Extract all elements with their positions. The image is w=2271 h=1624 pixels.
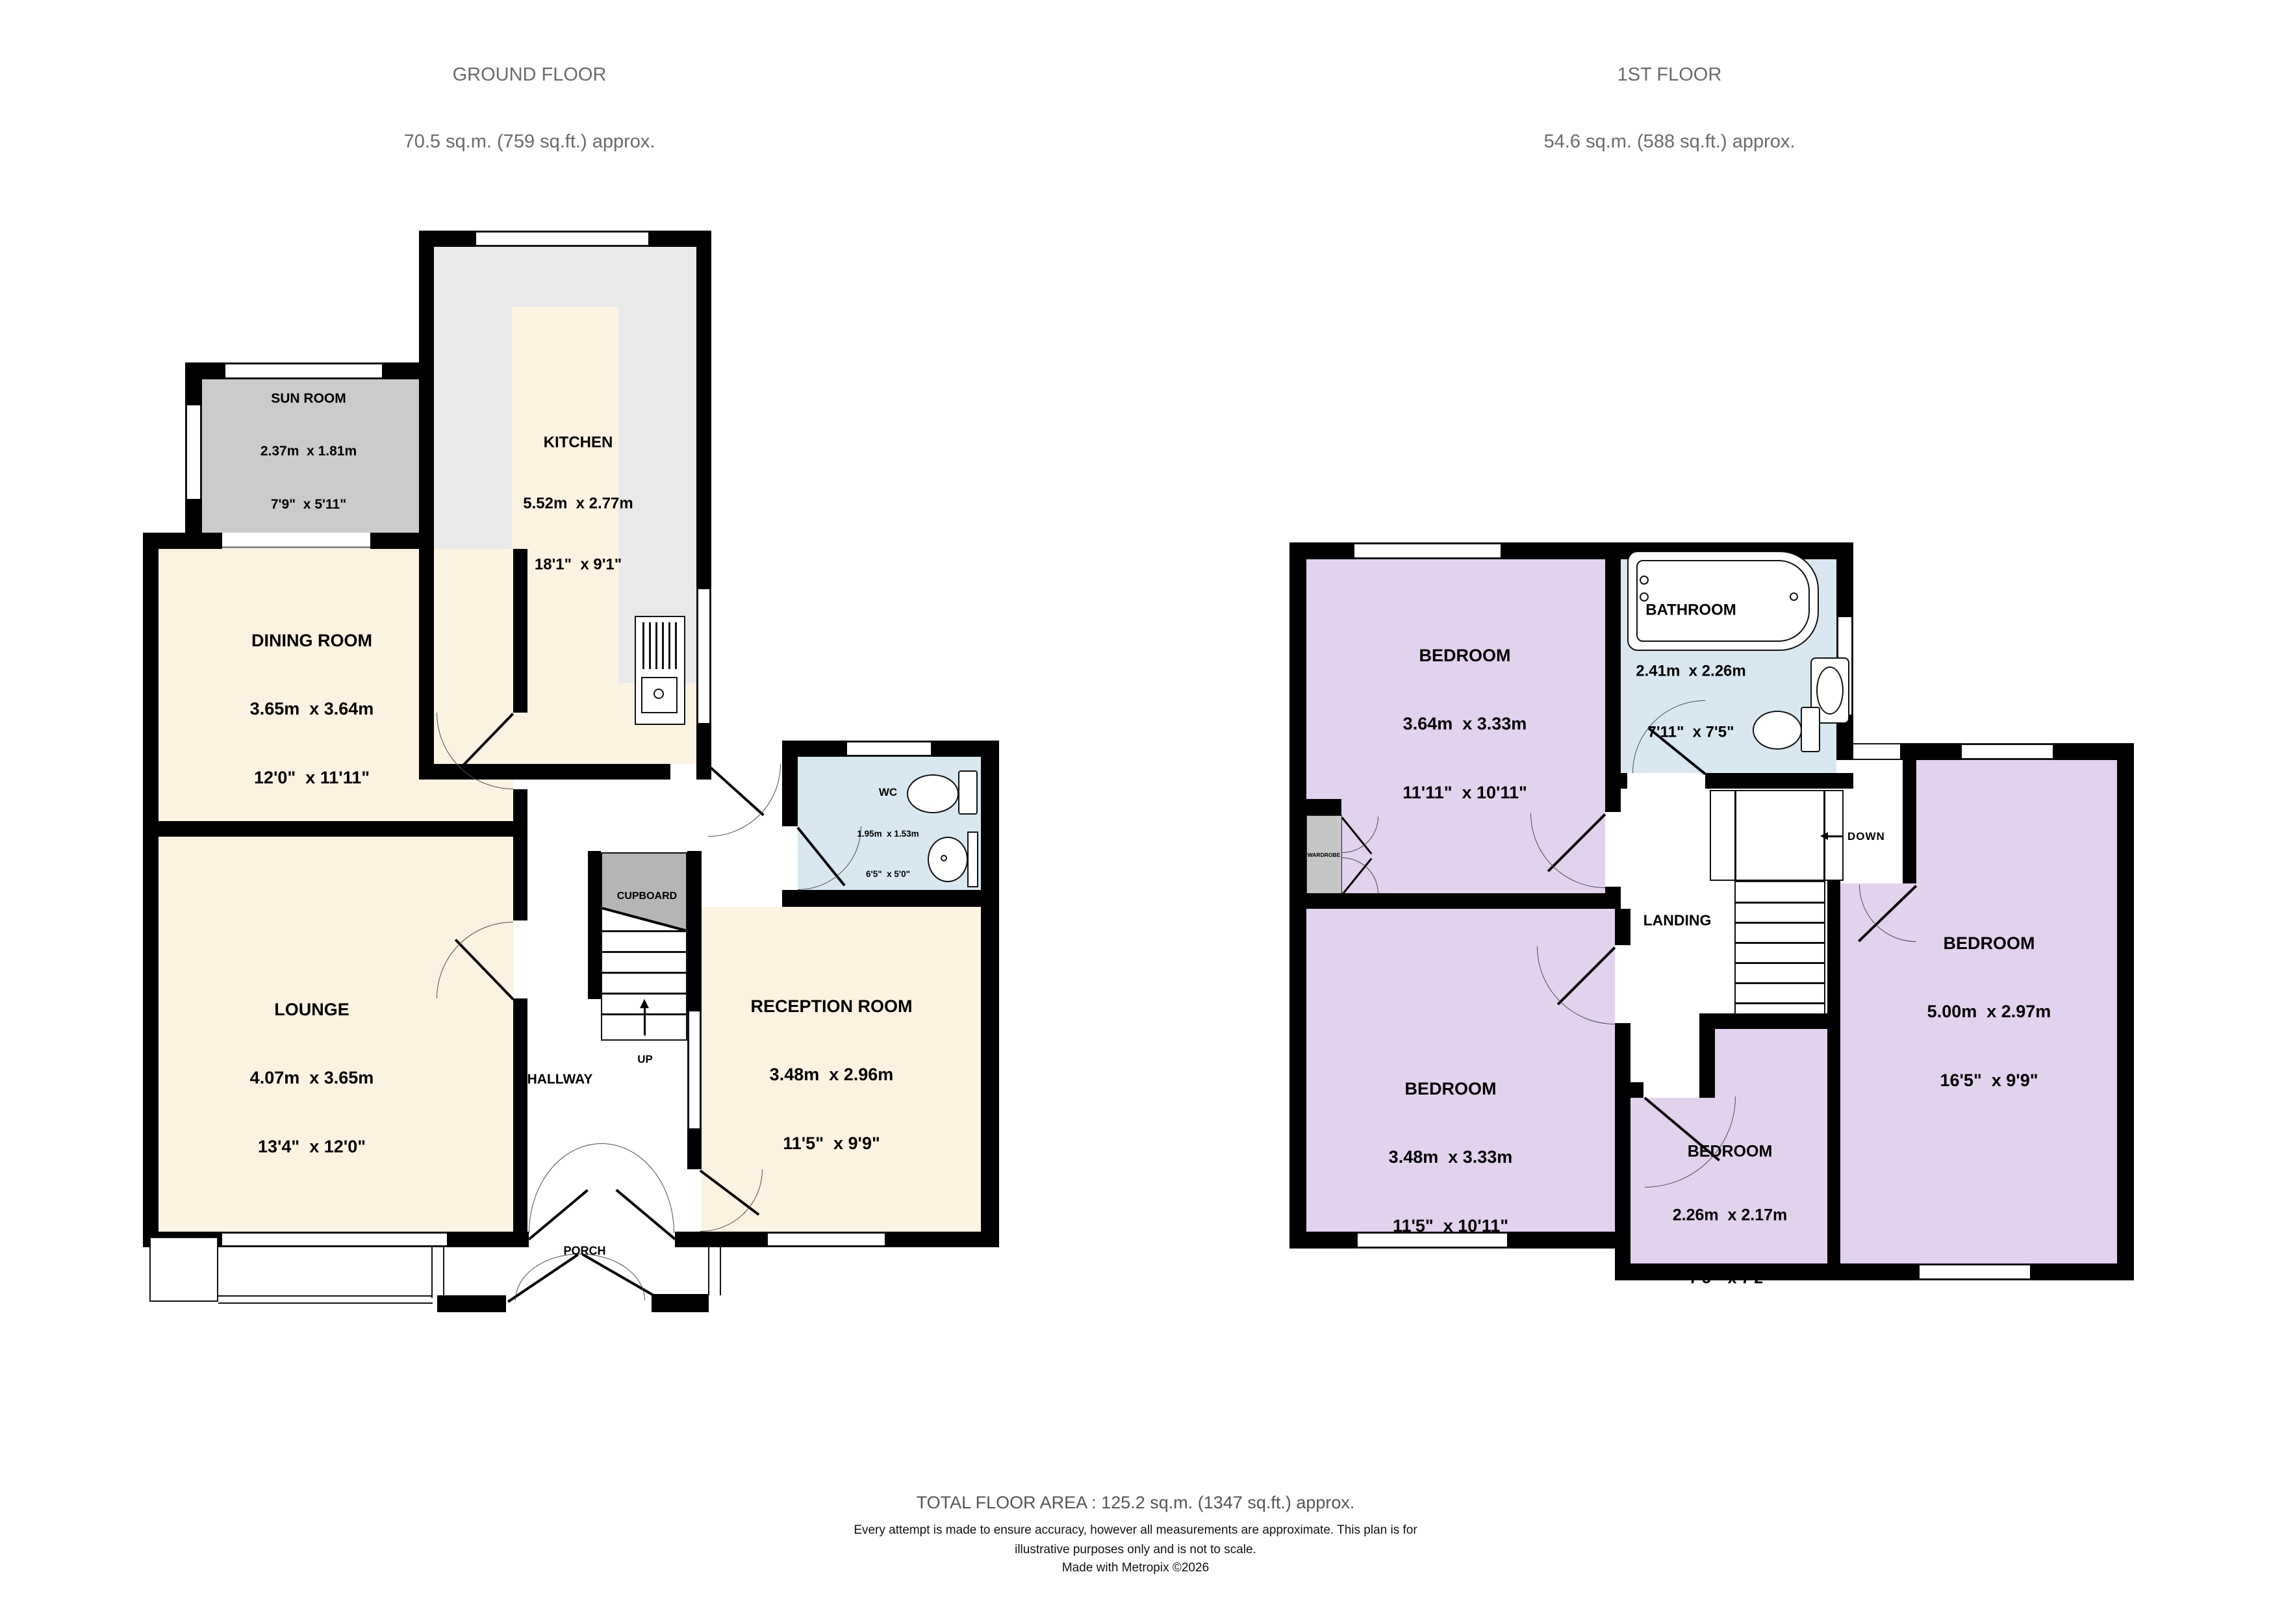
first-floor-title-line: 1ST FLOOR xyxy=(1544,64,1795,86)
wall xyxy=(185,362,225,379)
wall xyxy=(419,231,434,780)
stair-line xyxy=(1734,790,1736,881)
down-arrow-head xyxy=(1820,832,1828,840)
room-label-sun-room: SUN ROOM 2.37m x 1.81m 7'9" x 5'11" xyxy=(260,354,357,549)
room-name: SUN ROOM xyxy=(260,389,357,407)
wall xyxy=(687,1128,702,1169)
room-dim-imperial: 13'4" x 12'0" xyxy=(250,1136,374,1158)
toilet-cistern xyxy=(958,770,978,815)
room-dim-imperial: 11'5" x 10'11" xyxy=(1389,1215,1513,1237)
total-floor-area: TOTAL FLOOR AREA : 125.2 sq.m. (1347 sq.… xyxy=(917,1493,1355,1513)
window xyxy=(1354,542,1501,559)
wall xyxy=(1699,1029,1715,1098)
stair-tread xyxy=(602,993,687,995)
window xyxy=(222,1232,447,1247)
room-label-bedroom-1: BEDROOM 3.64m x 3.33m 11'11" x 10'11" xyxy=(1402,599,1527,850)
first-floor-area-line: 54.6 sq.m. (588 sq.ft.) approx. xyxy=(1544,131,1795,153)
room-label-bathroom: BATHROOM 2.41m x 2.26m 7'11" x 7'5" xyxy=(1636,559,1745,782)
down-arrow xyxy=(1827,835,1844,837)
wall xyxy=(2117,743,2134,1280)
stair-tread xyxy=(1734,982,1825,984)
window xyxy=(1962,743,2053,760)
room-name: BEDROOM xyxy=(1673,1141,1788,1162)
drainer-line xyxy=(668,622,670,669)
wall xyxy=(1289,893,1621,909)
room-label-dining: DINING ROOM 3.65m x 3.64m 12'0" x 11'11" xyxy=(250,584,374,835)
down-label: DOWN xyxy=(1847,830,1885,843)
wc-sink-tap xyxy=(941,855,947,861)
drainer-line xyxy=(642,622,644,669)
step-bay xyxy=(149,1237,218,1302)
room-name: WC xyxy=(857,785,919,800)
drainer-line xyxy=(662,622,664,669)
up-label: UP xyxy=(637,1053,653,1066)
wall xyxy=(885,1232,981,1247)
wardrobe-label: WARDROBE xyxy=(1308,852,1341,858)
room-dim-metric: 3.48m x 2.96m xyxy=(750,1063,912,1086)
stair-tread xyxy=(602,951,687,953)
stair-tread xyxy=(1734,1002,1825,1004)
wall xyxy=(513,998,527,1232)
room-dim-metric: 5.52m x 2.77m xyxy=(523,493,633,513)
room-dim-metric: 1.95m x 1.53m xyxy=(857,829,919,841)
room-dim-metric: 2.26m x 2.17m xyxy=(1673,1204,1788,1226)
wc-sink-counter xyxy=(967,831,978,887)
wall xyxy=(1605,773,1627,789)
room-label-bedroom-2: BEDROOM 3.48m x 3.33m 11'5" x 10'11" xyxy=(1389,1032,1513,1283)
room-dim-metric: 5.00m x 2.97m xyxy=(1927,1000,2051,1023)
staircase xyxy=(1734,881,1825,1015)
wc-sink xyxy=(928,837,968,882)
wall xyxy=(447,1232,529,1247)
room-name: LOUNGE xyxy=(250,998,374,1021)
window xyxy=(185,405,202,499)
bathroom-sink-basin xyxy=(1816,666,1844,715)
wall xyxy=(1289,1232,1358,1249)
room-dim-imperial: 18'1" x 9'1" xyxy=(523,554,633,574)
wall xyxy=(1615,1082,1643,1098)
room-label-reception: RECEPTION ROOM 3.48m x 2.96m 11'5" x 9'9… xyxy=(750,950,912,1200)
room-dim-metric: 3.48m x 3.33m xyxy=(1389,1146,1513,1169)
disclaimer-line-2: illustrative purposes only and is not to… xyxy=(1015,1543,1256,1557)
stair-tread xyxy=(602,972,687,974)
room-name: BEDROOM xyxy=(1389,1078,1513,1100)
room-name: BATHROOM xyxy=(1636,600,1745,620)
drainer-line xyxy=(649,622,651,669)
window xyxy=(1920,1263,2030,1280)
bath-drain xyxy=(1790,592,1798,601)
wall xyxy=(652,1294,709,1312)
stair-tread xyxy=(1734,902,1825,904)
window xyxy=(768,1232,885,1247)
wall xyxy=(696,231,711,589)
wall xyxy=(1615,1023,1630,1085)
wall xyxy=(1289,799,1341,815)
drainer-line xyxy=(655,622,657,669)
cupboard-label: CUPBOARD xyxy=(617,891,677,902)
window xyxy=(687,1011,702,1128)
wall xyxy=(437,1295,506,1312)
room-dim-metric: 3.64m x 3.33m xyxy=(1402,713,1527,735)
room-name: BEDROOM xyxy=(1402,644,1527,667)
room-label-bedroom-4: BEDROOM 5.00m x 2.97m 16'5" x 9'9" xyxy=(1927,887,2051,1137)
room-dim-imperial: 6'5" x 5'0" xyxy=(857,869,919,880)
ground-floor-title-line: GROUND FLOOR xyxy=(404,64,655,86)
wall xyxy=(782,741,798,826)
wall xyxy=(143,533,222,549)
window xyxy=(1853,743,1900,760)
toilet-cistern xyxy=(1801,707,1820,752)
room-dim-imperial: 7'9" x 5'11" xyxy=(260,496,357,513)
room-label-bedroom-3: BEDROOM 2.26m x 2.17m 7'5" x 7'2" xyxy=(1673,1098,1788,1331)
wall xyxy=(1507,1232,1618,1249)
window xyxy=(847,741,931,757)
wall xyxy=(1699,1013,1840,1029)
room-dim-metric: 2.37m x 1.81m xyxy=(260,442,357,460)
first-floor-title: 1ST FLOOR 54.6 sq.m. (588 sq.ft.) approx… xyxy=(1544,19,1795,197)
credit-line: Made with Metropix ©2026 xyxy=(1062,1561,1209,1575)
wall xyxy=(1836,542,1853,617)
wall xyxy=(419,231,476,247)
room-label-lounge: LOUNGE 4.07m x 3.65m 13'4" x 12'0" xyxy=(250,953,374,1204)
wall xyxy=(1827,880,1840,1026)
room-dim-imperial: 7'11" x 7'5" xyxy=(1636,722,1745,742)
up-arrow-head xyxy=(640,999,649,1008)
room-label-kitchen: KITCHEN 5.52m x 2.77m 18'1" x 9'1" xyxy=(523,392,633,615)
wall xyxy=(1615,1098,1630,1232)
sink-drain xyxy=(653,689,664,699)
room-dim-metric: 4.07m x 3.65m xyxy=(250,1067,374,1089)
wall xyxy=(687,907,702,1011)
up-arrow xyxy=(644,1008,646,1035)
room-dim-imperial: 12'0" x 11'11" xyxy=(250,767,374,789)
porch-label: PORCH xyxy=(563,1245,605,1258)
wall xyxy=(981,741,999,1247)
wall xyxy=(1827,1026,1840,1280)
room-dim-imperial: 11'5" x 9'9" xyxy=(750,1132,912,1155)
drainer-line xyxy=(675,622,677,669)
porch-side xyxy=(708,1247,721,1295)
wall xyxy=(588,851,601,999)
wall xyxy=(1903,743,1916,883)
room-name: RECEPTION ROOM xyxy=(750,995,912,1018)
toilet-bowl xyxy=(1753,711,1802,750)
hallway-label: HALLWAY xyxy=(527,1072,593,1087)
wall xyxy=(675,1232,768,1247)
room-label-wc: WC 1.95m x 1.53m 6'5" x 5'0" xyxy=(857,757,919,909)
wall xyxy=(513,789,527,920)
room-name: DINING ROOM xyxy=(250,629,374,652)
room-dim-metric: 3.65m x 3.64m xyxy=(250,698,374,720)
window xyxy=(476,231,648,247)
room-name: KITCHEN xyxy=(523,433,633,453)
room-dim-imperial: 11'11" x 10'11" xyxy=(1402,781,1527,804)
disclaimer-line-1: Every attempt is made to ensure accuracy… xyxy=(854,1523,1417,1538)
room-dim-imperial: 7'5" x 7'2" xyxy=(1673,1267,1788,1289)
floorplan-canvas: GROUND FLOOR 70.5 sq.m. (759 sq.ft.) app… xyxy=(0,0,2271,1624)
window xyxy=(696,589,711,723)
ground-floor-area-line: 70.5 sq.m. (759 sq.ft.) approx. xyxy=(404,131,655,153)
stair-tread xyxy=(602,930,687,932)
stair-tread xyxy=(1734,962,1825,964)
wall xyxy=(143,533,159,1247)
room-dim-imperial: 16'5" x 9'9" xyxy=(1927,1069,2051,1092)
wall xyxy=(185,499,202,549)
room-dim-metric: 2.41m x 2.26m xyxy=(1636,661,1745,681)
room-name: BEDROOM xyxy=(1927,932,2051,955)
stair-tread xyxy=(1734,922,1825,924)
wall xyxy=(1615,909,1630,945)
stair-tread xyxy=(1734,942,1825,944)
landing-label: LANDING xyxy=(1643,912,1712,930)
ground-floor-title: GROUND FLOOR 70.5 sq.m. (759 sq.ft.) app… xyxy=(404,19,655,197)
terrace-edge xyxy=(218,1295,433,1304)
porch-side xyxy=(431,1247,444,1298)
